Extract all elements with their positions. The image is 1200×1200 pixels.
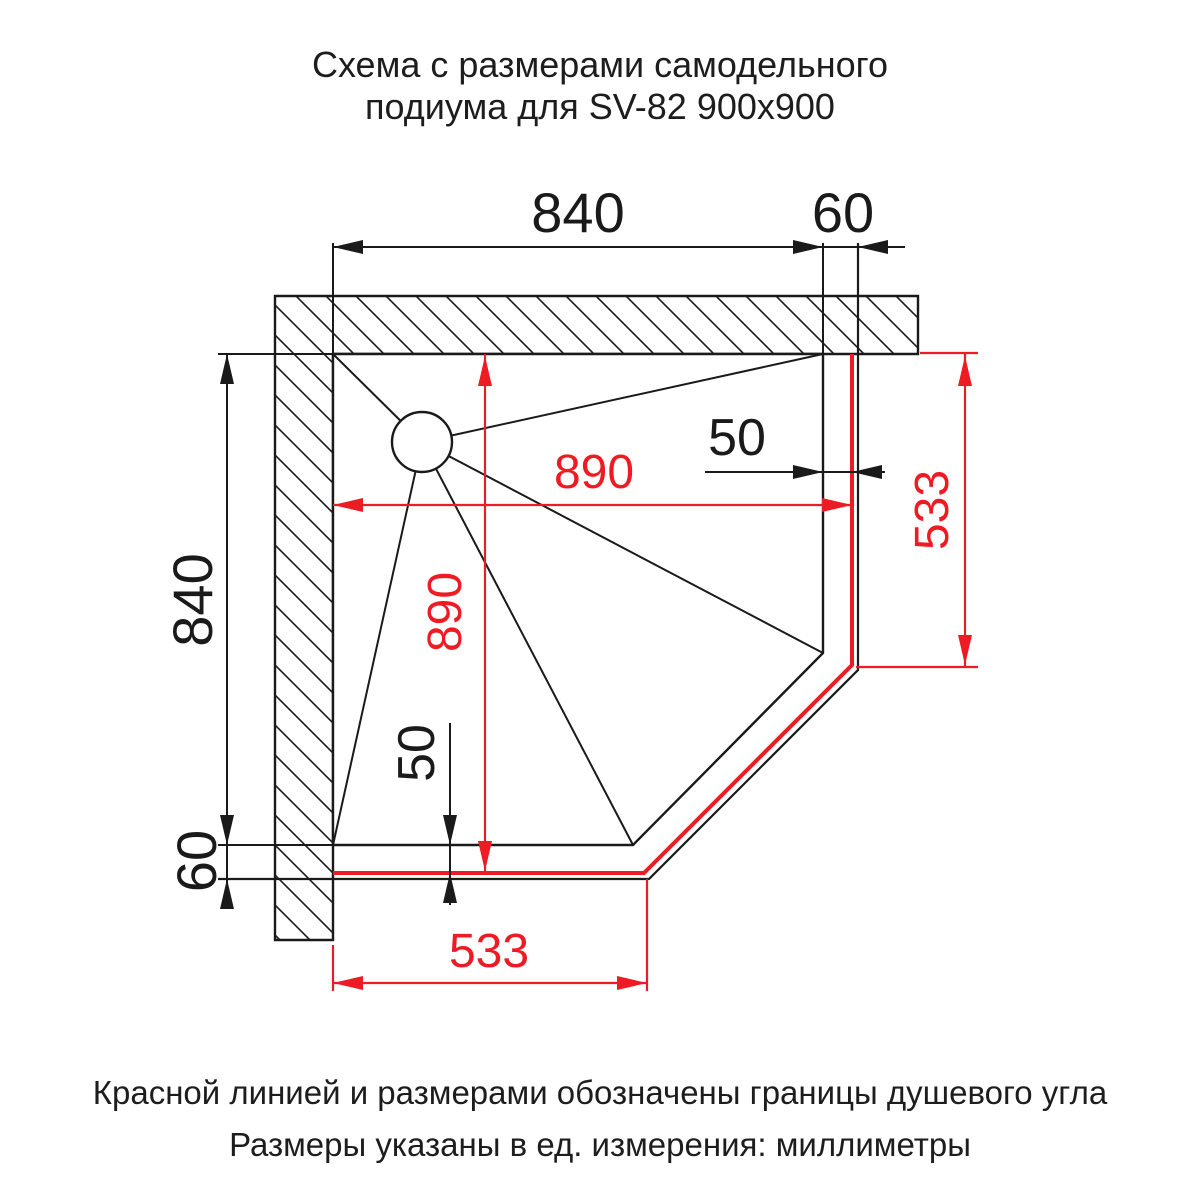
footer-note-units: Размеры указаны в ед. измерения: миллиме… xyxy=(229,1126,971,1163)
dim-right-50-label: 50 xyxy=(708,409,766,467)
dim-top-840-label: 840 xyxy=(531,181,624,244)
drain-circle xyxy=(392,412,452,472)
dim-red-890-width-label: 890 xyxy=(554,446,634,499)
dim-red-533-right-label: 533 xyxy=(906,470,959,550)
drawing-page: Схема с размерами самодельного подиума д… xyxy=(0,0,1200,1200)
dim-top-60-label: 60 xyxy=(812,181,874,244)
dim-left-840-label: 840 xyxy=(161,553,224,646)
dim-left-60-label: 60 xyxy=(165,830,228,892)
dim-bottom-50-label: 50 xyxy=(388,724,446,782)
title-line-2: подиума для SV-82 900x900 xyxy=(365,86,835,127)
footer-note-red-line: Красной линией и размерами обозначены гр… xyxy=(93,1074,1108,1111)
dim-red-890-height-label: 890 xyxy=(419,572,472,652)
podium-diagram: Схема с размерами самодельного подиума д… xyxy=(0,0,1200,1200)
dim-red-533-bottom-label: 533 xyxy=(449,925,529,978)
title-line-1: Схема с размерами самодельного xyxy=(312,44,888,85)
